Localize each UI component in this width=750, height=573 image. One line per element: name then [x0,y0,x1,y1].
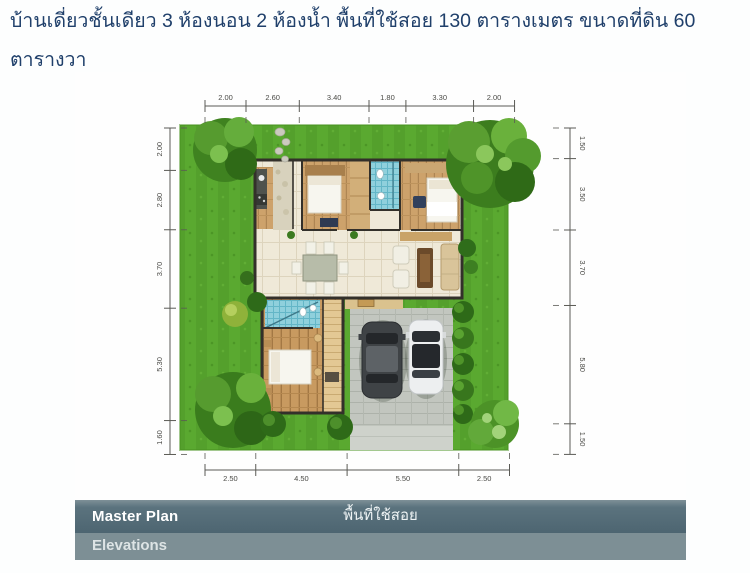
car-dark [359,320,408,402]
deck [323,300,343,413]
wardrobe [350,160,370,230]
svg-text:3.30: 3.30 [432,93,447,102]
tab-elevations[interactable]: Elevations [75,533,686,560]
tab-master-plan[interactable]: Master Plan พื้นที่ใช้สอย [75,500,686,533]
svg-text:4.50: 4.50 [294,474,309,483]
sideboard [400,232,452,241]
dimension-right: 1.503.503.705.801.50 [553,128,587,454]
dimension-top: 2.002.603.401.803.302.00 [205,93,515,123]
dining-table [303,255,337,281]
svg-text:5.80: 5.80 [578,357,587,372]
svg-text:2.80: 2.80 [155,193,164,208]
svg-text:3.50: 3.50 [578,187,587,202]
svg-text:2.50: 2.50 [477,474,492,483]
armchair-3 [413,196,426,208]
page: บ้านเดี่ยวชั้นเดียว 3 ห้องนอน 2 ห้องน้ำ … [0,0,750,573]
floor-plan-figure: 2.002.603.401.803.302.002.504.505.502.50… [75,72,686,560]
svg-text:1.60: 1.60 [155,430,164,445]
desk [325,372,339,382]
svg-text:2.00: 2.00 [155,142,164,157]
dimension-bottom: 2.504.505.502.50 [205,453,510,483]
armchair [393,270,409,288]
svg-text:2.60: 2.60 [265,93,280,102]
svg-text:3.40: 3.40 [327,93,342,102]
tree-top-right [446,118,541,208]
sofa [441,244,459,290]
tab-master-plan-label: Master Plan [92,500,178,533]
svg-text:5.50: 5.50 [396,474,411,483]
armchair [393,246,409,264]
doormat [358,300,374,307]
tab-elevations-label: Elevations [92,537,167,554]
svg-text:1.50: 1.50 [578,432,587,447]
svg-text:2.00: 2.00 [218,93,233,102]
svg-text:1.80: 1.80 [380,93,395,102]
svg-text:2.50: 2.50 [223,474,238,483]
page-title: บ้านเดี่ยวชั้นเดียว 3 ห้องนอน 2 ห้องน้ำ … [10,2,742,79]
svg-text:2.00: 2.00 [487,93,502,102]
svg-text:5.30: 5.30 [155,357,164,372]
floor-plan-svg: 2.002.603.401.803.302.002.504.505.502.50… [75,72,686,500]
svg-text:3.70: 3.70 [155,262,164,277]
dresser-2 [320,218,338,227]
bathroom-2 [370,160,400,210]
tab-master-plan-caption: พื้นที่ใช้สอย [343,500,418,531]
svg-text:3.70: 3.70 [578,260,587,275]
car-white [405,319,447,399]
tree-bottom-left [195,372,271,448]
tree-top-left [193,117,257,182]
svg-text:1.50: 1.50 [578,136,587,151]
stove [256,194,267,205]
